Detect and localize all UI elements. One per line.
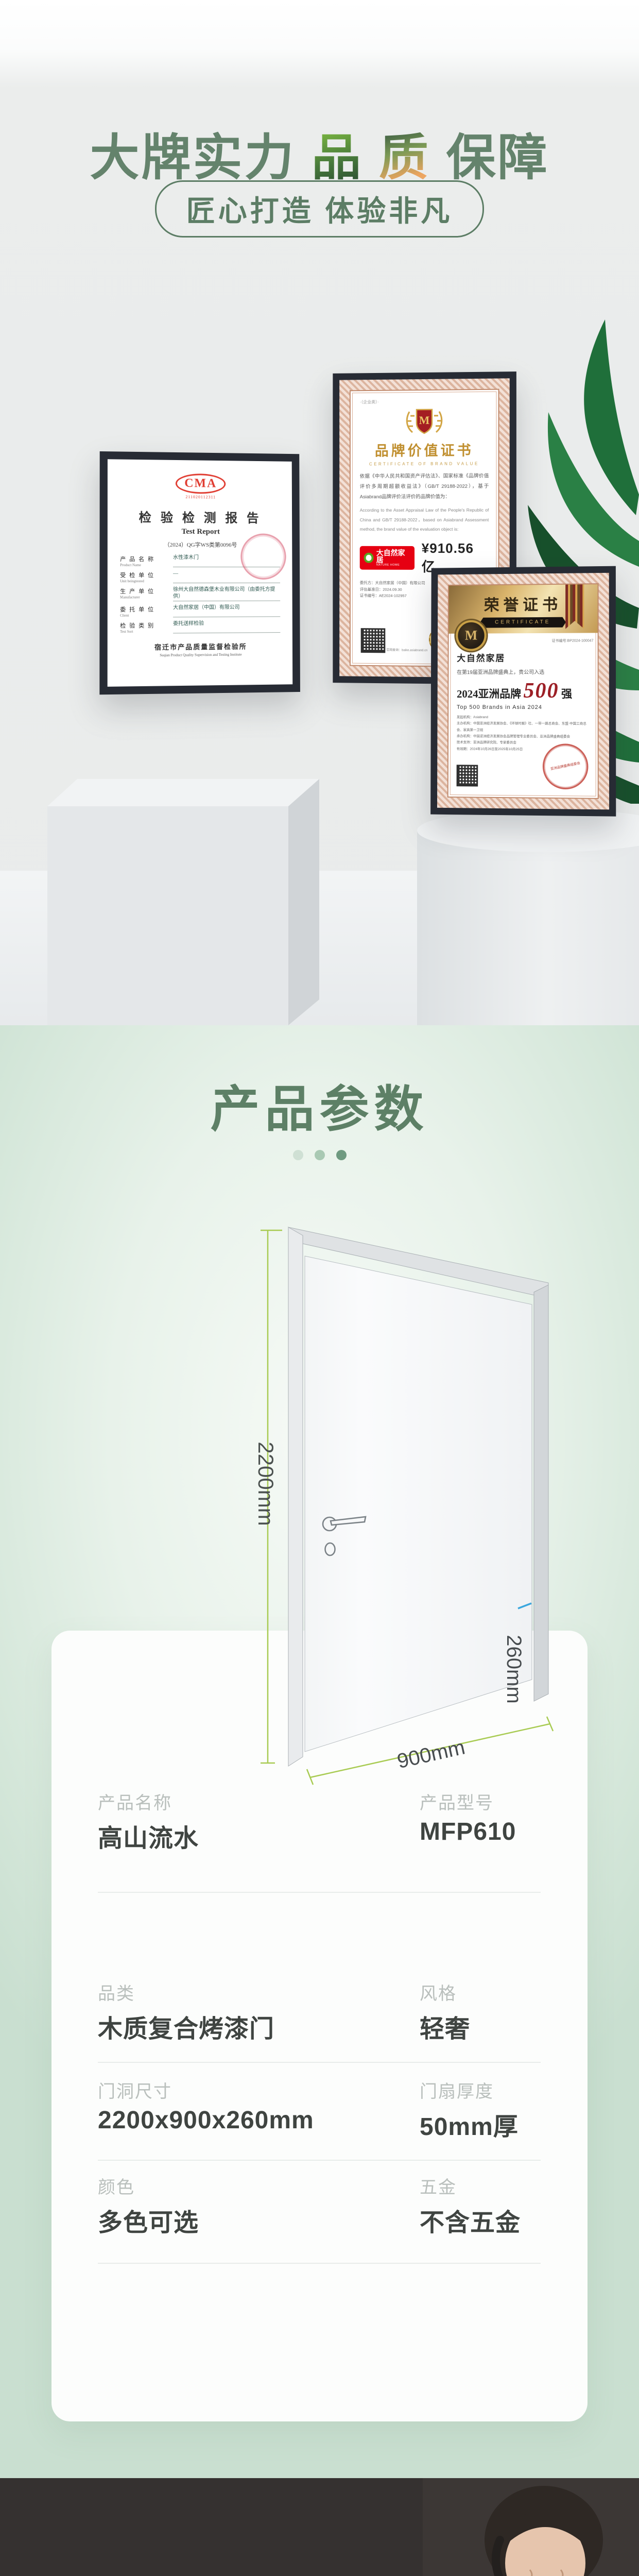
brand-value-paragraph-en: According to the Asset Appraisal Law of …: [360, 505, 489, 534]
qr-code: [361, 628, 386, 653]
report-field-row: 委 托 单 位 Client 大自然家居（中国）有限公司: [120, 604, 280, 617]
field-value: 大自然家居（中国）有限公司: [173, 604, 280, 617]
divider: [98, 2263, 541, 2264]
param-label: 产品名称: [98, 1789, 172, 1814]
testing-institute-en: Suqian Product Quality Supervision and T…: [120, 652, 280, 658]
page: 大牌实力 品 质 保障 匠心打造 体验非凡 CMA 211020112311 检…: [0, 0, 639, 2576]
brand-value-title: 品牌价值证书: [360, 439, 489, 460]
param-value: 轻奢: [420, 2008, 470, 2044]
field-label: 检 验 类 别: [120, 621, 170, 630]
param-label: 品类: [98, 1979, 135, 2005]
certificate-category: ·（企业类）·: [360, 398, 489, 405]
divider: [98, 1892, 541, 1893]
field-label: 委 托 单 位: [120, 605, 170, 614]
certificate-test-report: CMA 211020112311 检 验 检 测 报 告 Test Report…: [99, 451, 300, 694]
report-field-row: 检 验 类 别 Test Sort 委托送样检验: [120, 620, 280, 634]
field-label: 生 产 单 位: [120, 587, 170, 595]
param-label: 颜色: [98, 2173, 135, 2198]
param-label: 产品型号: [420, 1789, 494, 1814]
param-value: MFP610: [420, 1818, 516, 1846]
param-value: 高山流水: [98, 1818, 199, 1854]
field-label-en: Test Sort: [120, 630, 170, 634]
test-report-title: 检 验 检 测 报 告: [120, 507, 280, 526]
cma-logo: CMA: [176, 473, 226, 494]
qr-code: [457, 765, 478, 786]
customer-service-photo: [423, 2478, 639, 2576]
section-title-product-parameters: 产品参数: [0, 1069, 639, 1141]
field-label-en: Manufacturer: [120, 595, 170, 599]
report-field-row: 生 产 单 位 Manufacturer 徐州大自然德森堡木业有限公司（由委托方…: [120, 587, 280, 602]
field-label-en: Unit beingtested: [120, 579, 170, 583]
door-depth-label: 260mm: [503, 1635, 525, 1703]
award-ribbon-icon: [565, 584, 584, 629]
hero-title-part1: 大牌实力: [90, 130, 296, 185]
brand-name-cn: 大自然家居: [376, 549, 410, 564]
honor-line: 主办机构：中国亚洲经济发展协会、《环球时报》社、一带一路总商会、东盟·中国工商总…: [457, 721, 591, 734]
honor-line: 承办机构：中国亚洲经济发展协会品牌管理专业委员会、亚洲品牌盛典组委会: [457, 734, 591, 740]
dark-overlay: [0, 2478, 352, 2576]
brand-value-site: 官网查询：baike.asiabrand.cn: [386, 647, 427, 652]
svg-text:M: M: [419, 414, 429, 427]
certificate-honor: 荣誉证书 CERTIFICATE M 证书编号:BP2024-100047 大自…: [430, 566, 616, 817]
param-label: 门洞尺寸: [98, 2077, 172, 2103]
honor-headline-number: 500: [523, 679, 559, 703]
field-label-en: Product Name: [120, 563, 170, 567]
honor-medal-icon: M: [456, 620, 486, 651]
service-section: 金保姆服务 全国1000+实体门店支持 咨询下单 › 上门量尺 ›: [0, 2478, 639, 2576]
honor-line: 发起机构：Asiabrand: [457, 715, 591, 721]
field-label-en: Client: [120, 613, 170, 618]
honor-headline-en: Top 500 Brands in Asia 2024: [457, 704, 591, 710]
hero-certificates-section: 大牌实力 品 质 保障 匠心打造 体验非凡 CMA 211020112311 检…: [0, 0, 639, 1025]
gold-emblem-icon: M: [402, 405, 446, 438]
door-height-label: 2200mm: [254, 1442, 278, 1526]
brand-name-en: NATURE HOME: [376, 564, 410, 567]
divider: [98, 2160, 541, 2161]
param-label: 风格: [420, 1979, 457, 2005]
divider: [98, 2062, 541, 2063]
field-value: 委托送样检验: [173, 620, 280, 633]
param-value: 2200x900x260mm: [98, 2106, 314, 2134]
hero-title-pin: 品: [312, 130, 363, 185]
honor-intro: 在第19届亚洲品牌盛典上，贵公司入选: [457, 668, 590, 675]
param-value: 木质复合烤漆门: [98, 2008, 274, 2044]
title-dots: [0, 1150, 639, 1163]
brand-value-subtitle: CERTIFICATE OF BRAND VALUE: [360, 461, 489, 466]
param-label: 门扇厚度: [420, 2077, 494, 2103]
door-width-label: 900mm: [395, 1736, 467, 1773]
field-label: 受 检 单 位: [120, 571, 170, 579]
honor-cert-number: 证书编号:BP2024-100047: [552, 638, 594, 643]
honor-headline-prefix: 2024亚洲品牌: [457, 688, 521, 700]
nature-home-logo-icon: [364, 553, 374, 563]
field-label: 产 品 名 称: [120, 555, 170, 563]
brand-value-paragraph-cn: 依据《中华人民共和国资产评估法》、国家标准《品牌价值评价多周期超额收益法》（GB…: [360, 471, 489, 503]
cma-number: 211020112311: [120, 494, 280, 500]
param-label: 五金: [420, 2173, 457, 2198]
param-value: 50mm厚: [420, 2106, 519, 2142]
field-value: 徐州大自然德森堡木业有限公司（由委托方提供）: [173, 587, 280, 601]
honor-headline-suffix: 强: [561, 688, 572, 700]
hero-title-part3: 保障: [446, 130, 549, 185]
door-dimension-diagram: 2200mm 260mm 900mm: [216, 1216, 566, 1788]
hero-title-zhi: 质: [379, 130, 430, 185]
honor-certificate-ribbon: CERTIFICATE: [480, 617, 566, 628]
testing-institute: 宿迁市产品质量监督检验所: [120, 641, 280, 652]
hero-title: 大牌实力 品 质 保障: [0, 117, 639, 189]
nature-home-logo: 大自然家居 NATURE HOME: [360, 546, 415, 570]
param-value: 不含五金: [420, 2202, 521, 2238]
param-value: 多色可选: [98, 2202, 199, 2238]
honor-brand: 大自然家居: [457, 651, 590, 664]
hero-badge: 匠心打造 体验非凡: [155, 180, 485, 238]
